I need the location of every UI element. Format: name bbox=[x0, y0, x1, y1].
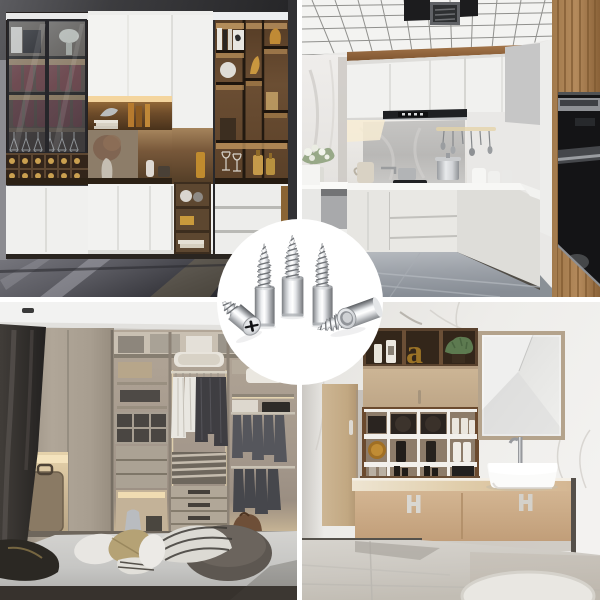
svg-text:a: a bbox=[406, 334, 423, 371]
